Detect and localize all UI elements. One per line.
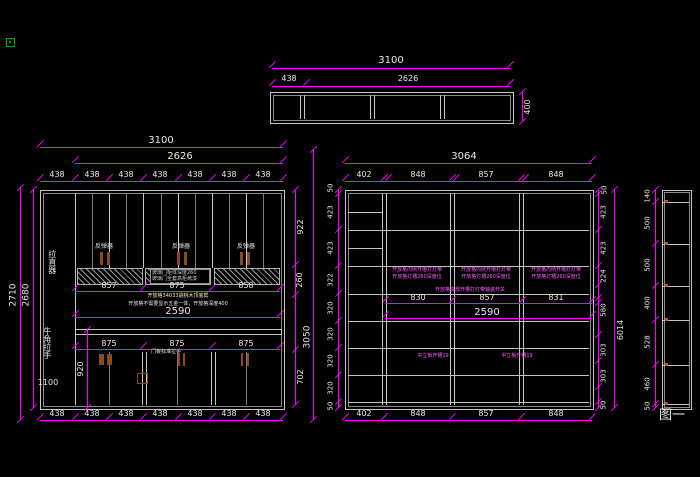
dim-label: 438 [84, 410, 99, 418]
dim-line-right-overall [345, 163, 592, 164]
dim-tick-icon [381, 413, 388, 420]
shelf-line [348, 375, 589, 376]
dim-tick-icon [269, 79, 276, 86]
dim-label: 875 [101, 340, 116, 348]
door-seam-line [263, 193, 264, 268]
dim-line-right-midrow [385, 303, 592, 304]
dim-tick-icon [280, 174, 287, 181]
dim-label: 402 [356, 171, 371, 179]
dim-label: 438 [187, 410, 202, 418]
dim-tick-icon [175, 174, 182, 181]
door-seam-line [161, 193, 162, 268]
dim-label: 3100 [148, 136, 173, 146]
dim-label: 580 [601, 303, 608, 316]
dim-label: 438 [49, 410, 64, 418]
shelf-line [348, 402, 589, 403]
slot-note: 中立板开槽19 [501, 354, 532, 359]
slot-note: 中立板开槽19 [417, 354, 448, 359]
dim-tick-icon [449, 413, 456, 420]
dim-tick-icon [518, 413, 525, 420]
left-cabinet-lower-mullion [211, 352, 216, 405]
shelf-note-line2: 开放格灯槽260深度位 [531, 275, 581, 280]
center-note: 开放格底部开槽打灯带轴装开关 [435, 288, 505, 293]
dim-tick-icon [519, 88, 526, 95]
dim-label: 857 [478, 410, 493, 418]
door-handle-note: 门板标准拉手 [151, 350, 181, 355]
dim-label: 438 [255, 171, 270, 179]
dim-label: 50 [601, 401, 608, 410]
dim-label: 858 [238, 282, 253, 290]
dim-line-side-chain [655, 190, 656, 408]
topview-cabinet-inner-outline [273, 95, 511, 121]
dim-label: 423 [328, 241, 335, 254]
dim-line-left-inner-width [75, 163, 283, 164]
dim-line-left-2590 [75, 317, 280, 318]
dim-label: 50 [645, 402, 652, 411]
dim-label: 438 [84, 171, 99, 179]
dim-tick-icon [507, 79, 514, 86]
dim-label: 702 [297, 369, 305, 384]
door-seam-line [229, 193, 230, 268]
topview-divider [300, 95, 305, 119]
hinge-icon [240, 252, 243, 265]
dim-label: 438 [118, 171, 133, 179]
dim-tick-icon [269, 61, 276, 68]
narrow-column-shelf-line [348, 248, 382, 249]
dim-label: 2590 [165, 307, 190, 317]
dim-label: 848 [410, 171, 425, 179]
left-cabinet-mullion [143, 193, 144, 268]
dim-tick-icon [280, 140, 287, 147]
dim-label: 920 [77, 361, 85, 376]
hinge-icon [100, 252, 103, 265]
dim-tick-icon [335, 344, 342, 351]
topview-divider [370, 95, 375, 119]
dim-label: 260 [296, 272, 304, 287]
dim-line-left-right-outer [313, 150, 314, 420]
dim-tick-icon [519, 118, 526, 125]
dim-label: 320 [328, 327, 335, 340]
dim-label: 423 [601, 241, 608, 254]
hinge-icon [184, 252, 187, 265]
rebounder-note: 反弹器 [95, 244, 113, 250]
door-handle-icon [107, 354, 112, 365]
shelf-note-line2: 开放格灯槽260深度位 [461, 275, 511, 280]
dim-line-left-midrow [75, 291, 280, 292]
rebounder-note: 反弹器 [172, 244, 190, 250]
dim-label: 500 [645, 216, 652, 229]
dim-label: 460 [645, 377, 652, 390]
dim-tick-icon [106, 174, 113, 181]
cad-drawing-canvas: 3100 438 2626 400 3100 2626 438 438 438 … [0, 0, 700, 477]
dim-tick-icon [72, 156, 79, 163]
dim-label: 50 [328, 184, 335, 193]
dim-label: 224 [601, 269, 608, 282]
dim-tick-icon [280, 413, 287, 420]
dim-tick-icon [342, 156, 349, 163]
dim-tick-icon [280, 156, 287, 163]
lock-symbol-icon [137, 373, 148, 384]
door-handle-icon [241, 353, 243, 366]
dim-label: 438 [49, 171, 64, 179]
dim-label: 438 [187, 171, 202, 179]
dim-tick-icon [292, 186, 299, 193]
figure-title: 图一 [659, 409, 685, 422]
dim-label: 6014 [617, 320, 625, 340]
dim-tick-icon [310, 146, 317, 153]
dim-tick-icon [589, 174, 596, 181]
door-seam-line [92, 193, 93, 268]
dim-label: 400 [645, 296, 652, 309]
dim-line-right-right-outer [614, 190, 615, 408]
dim-label: 438 [281, 75, 296, 83]
dim-tick-icon [243, 174, 250, 181]
dim-line-left-920 [87, 330, 88, 408]
dim-tick-icon [303, 79, 310, 86]
dim-label: 2626 [398, 75, 418, 83]
dim-tick-icon [342, 174, 349, 181]
open-shelf-note-line1: 开放格34033胡桃木顶底帮 [148, 294, 209, 299]
dim-tick-icon [335, 404, 342, 411]
dim-tick-icon [106, 413, 113, 420]
dim-label: 303 [601, 369, 608, 382]
dim-tick-icon [243, 413, 250, 420]
dim-label: 857 [101, 282, 116, 290]
dim-label: 438 [221, 410, 236, 418]
topview-divider [440, 95, 445, 119]
shelf-note-line1: 开放格内侧开槽打灯带 [531, 268, 581, 273]
dim-tick-icon [37, 413, 44, 420]
dim-label: 3050 [304, 326, 313, 349]
dim-label: 875 [169, 282, 184, 290]
dim-line-right-columns [345, 181, 592, 182]
dim-tick-icon [292, 291, 299, 298]
side-section-inner-outline [664, 192, 690, 408]
dim-label: 320 [328, 301, 335, 314]
dim-line-right-left-chain [338, 190, 339, 408]
dim-label: 830 [410, 294, 425, 302]
dim-label: 875 [238, 340, 253, 348]
dim-label: 848 [548, 410, 563, 418]
door-handle-icon [178, 353, 180, 366]
dim-tick-icon [175, 413, 182, 420]
dim-label: 831 [548, 294, 563, 302]
dim-line-right-2590 [385, 318, 592, 319]
dim-tick-icon [292, 346, 299, 353]
dim-label: 140 [645, 189, 652, 202]
shelf-pin-icon [665, 200, 668, 203]
dim-tick-icon [611, 404, 618, 411]
dim-line-right-bottom-columns [345, 420, 592, 421]
dim-tick-icon [595, 226, 602, 233]
horn-handle-label: 牛角拉手 [42, 327, 51, 359]
shelf-pin-icon [665, 242, 668, 245]
dim-label: 875 [169, 340, 184, 348]
dim-tick-icon [507, 61, 514, 68]
shelf-band [75, 329, 282, 335]
hinge-icon [247, 252, 250, 265]
dim-line-topview-segments [272, 86, 510, 87]
door-handle-icon [99, 354, 104, 365]
dim-tick-icon [652, 240, 659, 247]
dim-tick-icon [17, 184, 24, 191]
dim-tick-icon [595, 357, 602, 364]
dim-label: 528 [645, 335, 652, 348]
dim-label: 2626 [167, 152, 192, 162]
dim-label: 423 [328, 205, 335, 218]
shelf-pin-icon [665, 284, 668, 287]
dim-label: 500 [645, 258, 652, 271]
dim-tick-icon [140, 413, 147, 420]
dim-tick-icon [30, 404, 37, 411]
dim-tick-icon [342, 413, 349, 420]
dim-tick-icon [652, 186, 659, 193]
dim-tick-icon [72, 174, 79, 181]
dim-label: 857 [479, 294, 494, 302]
horn-handle-number: 1100 [38, 379, 58, 387]
door-seam-line [126, 193, 127, 268]
dim-label: 848 [548, 171, 563, 179]
dim-label: 320 [328, 381, 335, 394]
dim-label: 438 [152, 410, 167, 418]
dim-label: 423 [601, 205, 608, 218]
dim-label: 402 [356, 410, 371, 418]
dim-line-left-overall [40, 147, 283, 148]
shelf-line [348, 348, 589, 349]
dim-label: 2710 [10, 284, 19, 307]
dim-tick-icon [37, 174, 44, 181]
narrow-column-shelf-line [348, 212, 382, 213]
dim-tick-icon [292, 261, 299, 268]
dim-tick-icon [652, 198, 659, 205]
dim-tick-icon [589, 413, 596, 420]
rebounder-note: 反弹器 [237, 244, 255, 250]
dim-label: 2680 [23, 284, 32, 307]
hinge-icon [107, 252, 110, 265]
dim-label: 438 [255, 410, 270, 418]
shelf-pin-icon [665, 363, 668, 366]
shelf-note-line1: 开放格内侧开槽打灯带 [461, 268, 511, 273]
dim-label: 2590 [474, 308, 499, 318]
dim-line-left-columns [40, 181, 283, 182]
dim-tick-icon [595, 383, 602, 390]
hinge-icon [177, 252, 180, 265]
dim-label: 857 [478, 171, 493, 179]
dim-tick-icon [652, 282, 659, 289]
dim-tick-icon [209, 413, 216, 420]
dim-line-left-height-inner [33, 190, 34, 408]
door-handle-icon [183, 353, 185, 366]
dim-tick-icon [17, 416, 24, 423]
dim-tick-icon [37, 140, 44, 147]
dim-tick-icon [595, 262, 602, 269]
dim-tick-icon [292, 401, 299, 408]
shelf-note-line2: 开放格灯槽260深度位 [392, 275, 442, 280]
shelf-pin-icon [665, 318, 668, 321]
dim-label: 320 [328, 354, 335, 367]
shelf-line [348, 230, 589, 231]
dim-tick-icon [335, 371, 342, 378]
dim-tick-icon [652, 316, 659, 323]
dim-label: 3064 [451, 152, 476, 162]
door-seam-line [195, 193, 196, 268]
dim-tick-icon [589, 156, 596, 163]
dim-tick-icon [652, 361, 659, 368]
block-marker-dot-icon [9, 41, 11, 43]
dim-label: 922 [297, 219, 305, 234]
dim-tick-icon [72, 413, 79, 420]
shelf-pin-icon [665, 402, 668, 405]
dim-label: 322 [328, 273, 335, 286]
dim-tick-icon [209, 174, 216, 181]
dim-tick-icon [611, 186, 618, 193]
dim-label: 303 [601, 343, 608, 356]
dim-label: 400 [524, 99, 532, 114]
dim-label: 50 [328, 402, 335, 411]
dim-tick-icon [30, 186, 37, 193]
straightener-label: 拉直器 [47, 250, 56, 274]
dim-tick-icon [335, 290, 342, 297]
dim-tick-icon [335, 226, 342, 233]
dim-label: 438 [221, 171, 236, 179]
shelf-line [348, 321, 589, 322]
door-handle-icon [247, 353, 249, 366]
dim-tick-icon [595, 331, 602, 338]
dim-line-topview-overall [272, 68, 510, 69]
dim-label: 50 [602, 186, 609, 195]
dim-label: 438 [152, 171, 167, 179]
left-cabinet-mullion [212, 193, 213, 268]
dim-tick-icon [140, 174, 147, 181]
dim-tick-icon [310, 416, 317, 423]
dim-label: 848 [410, 410, 425, 418]
dim-line-left-bottom-columns [40, 420, 283, 421]
dim-label: 3100 [378, 56, 403, 66]
shelf-note-line1: 开放格内侧开槽打灯带 [392, 268, 442, 273]
dim-tick-icon [335, 317, 342, 324]
dim-label: 438 [118, 410, 133, 418]
dim-tick-icon [335, 262, 342, 269]
